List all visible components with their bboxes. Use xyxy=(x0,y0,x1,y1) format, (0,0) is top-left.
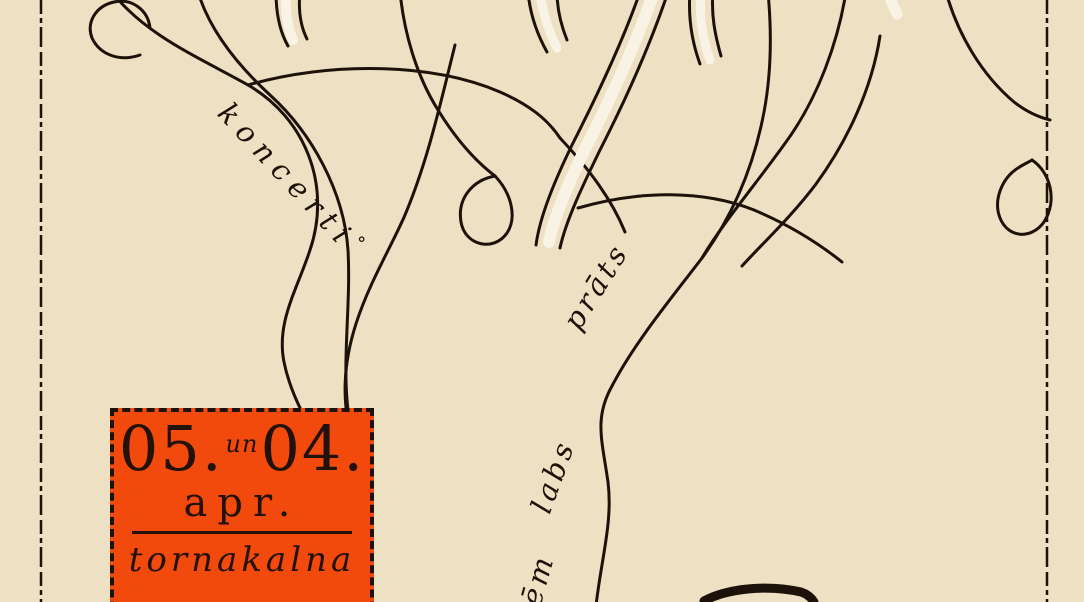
date-month: apr. xyxy=(114,483,370,523)
date-line: 05.un04. xyxy=(114,416,370,481)
venue-partial-text: tornakalna xyxy=(114,540,370,580)
concert-poster: koncerti° prāts labs ēm 05.un04. apr. to… xyxy=(0,0,1084,602)
date-day-left: 05. xyxy=(119,412,224,485)
date-box-divider xyxy=(132,531,352,534)
partial-letter-stroke xyxy=(704,588,814,602)
date-box: 05.un04. apr. tornakalna xyxy=(110,408,374,602)
date-day-right: 04. xyxy=(260,412,365,485)
date-conjunction: un xyxy=(226,430,259,458)
